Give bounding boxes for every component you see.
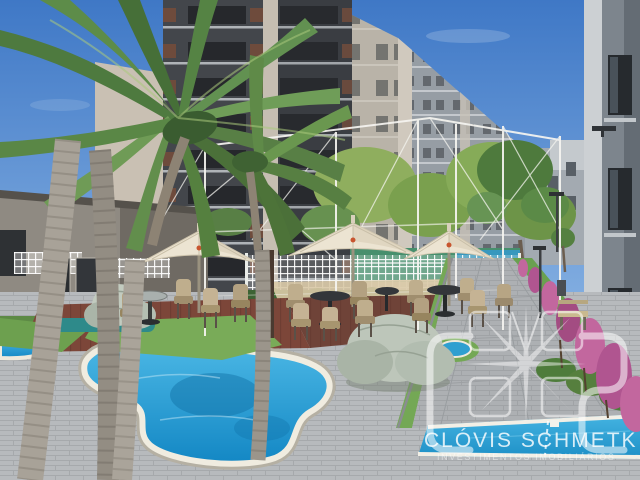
scene-canvas xyxy=(0,0,640,480)
watermark-tagline: INVESTIMENTOS IMOBILIÁRIOS xyxy=(437,452,637,462)
watermark-brand-name: CLÓVIS SCHMETK xyxy=(424,429,638,453)
architectural-rendering: CLÓVIS SCHMETK INVESTIMENTOS IMOBILIÁRIO… xyxy=(0,0,640,480)
